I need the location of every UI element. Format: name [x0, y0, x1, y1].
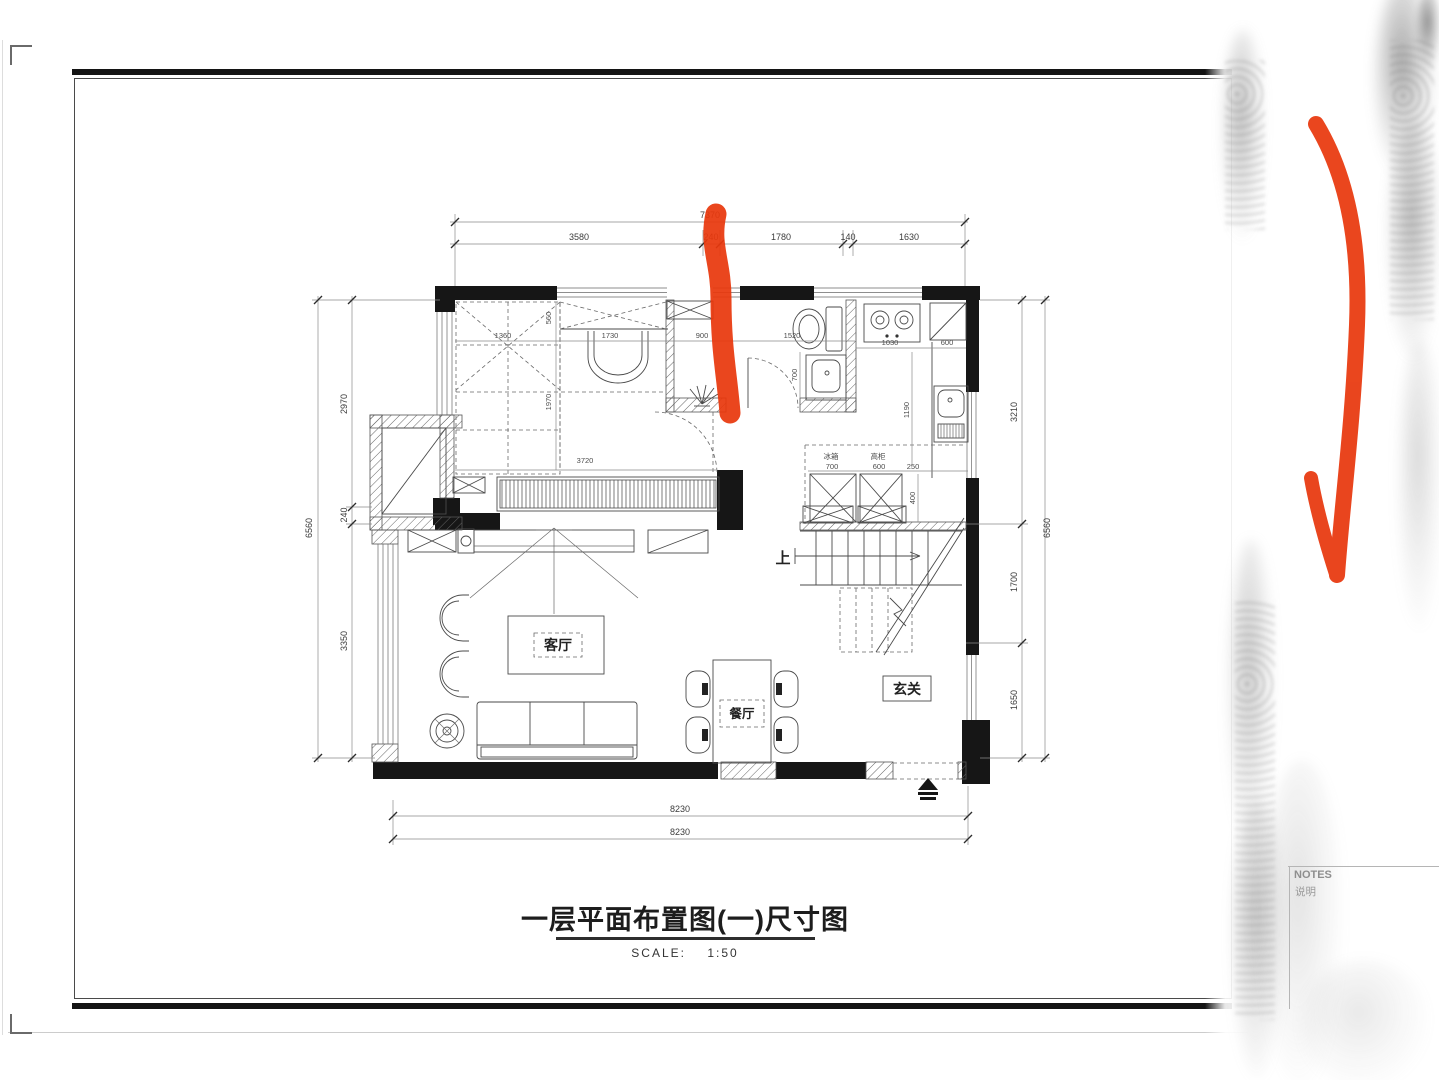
red-annotations-svg	[0, 0, 1439, 1080]
red-stroke-annotation	[714, 214, 730, 413]
red-arrow-barb	[1311, 478, 1336, 574]
scanned-floorplan-sheet: 7370 3580 240 1780 140 1630 6560 2970 24…	[0, 0, 1439, 1080]
